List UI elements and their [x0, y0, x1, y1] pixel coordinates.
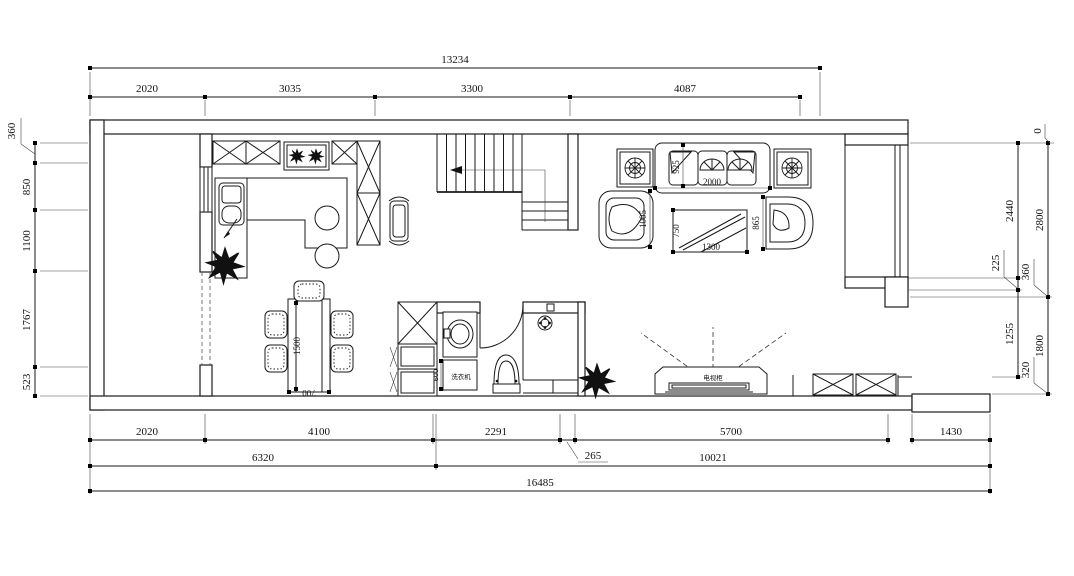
dim-bottom-leader: 265: [585, 450, 602, 462]
floor-drain-icon: [538, 316, 552, 330]
dim-right-outer-leader: 320: [1020, 361, 1032, 378]
stair-wall: [568, 134, 578, 230]
dim-sofa-depth: 925: [671, 160, 681, 174]
armchair-right: 865: [751, 195, 813, 251]
dim-bottom-seg: 5700: [720, 426, 743, 438]
living-room: 2000 925 1005 865: [599, 143, 813, 254]
dim-dining-width: 700: [302, 388, 316, 398]
dim-top-seg: 3035: [279, 83, 302, 95]
dim-top-overall: 13234: [441, 54, 469, 66]
dim-bottom-row2: 10021: [699, 452, 727, 464]
dim-right-outer: 2800: [1034, 209, 1046, 232]
bathroom-door: [480, 305, 523, 348]
tv-area: 电视柜: [641, 327, 912, 396]
dimensions-left: 360 850 1100 1767 523: [6, 118, 88, 398]
staircase: [437, 134, 578, 230]
hall-door-panel: [380, 141, 409, 245]
dim-sofa-width: 2000: [703, 177, 722, 187]
washing-machine: 洗衣机 600: [432, 359, 477, 391]
dining-chair: [331, 311, 353, 338]
dim-coffee-table-length: 1300: [702, 242, 721, 252]
coffee-table: 750 1300: [671, 208, 749, 254]
dim-top-seg: 2020: [136, 83, 159, 95]
dim-bottom-seg: 2291: [485, 426, 507, 438]
dim-bottom-row2: 6320: [252, 452, 275, 464]
storage-cabinet: [390, 302, 437, 396]
dim-left-seg: 1100: [21, 230, 33, 252]
washing-machine-label: 洗衣机: [451, 372, 471, 381]
side-table-left: [617, 149, 653, 187]
vanity: [443, 312, 477, 357]
dim-right-inner: 2440: [1004, 200, 1016, 223]
toilet: [493, 355, 520, 393]
dim-right-inner-leader: 225: [990, 254, 1002, 271]
dim-armchair-right: 865: [751, 216, 761, 230]
stool: [315, 206, 339, 230]
dining-chair: [265, 311, 287, 338]
interior-wall-left: [200, 134, 212, 396]
dim-armchair-left: 1005: [638, 210, 648, 229]
kitchen: [207, 141, 409, 283]
dim-bottom-seg: 1430: [940, 426, 963, 438]
low-cabinets: [793, 374, 912, 396]
dim-bottom-overall: 16485: [526, 477, 554, 489]
sliding-opening: [202, 272, 210, 365]
dim-top-seg: 3300: [461, 83, 484, 95]
dim-right-outer-leader: 360: [1020, 263, 1032, 280]
decor-rosette-icon: [782, 158, 802, 178]
dim-left-seg: 523: [21, 373, 33, 390]
dimensions-top: 13234 2020 3035 3300 4087: [88, 54, 822, 116]
tall-cabinet: [357, 141, 380, 245]
dim-right-outer: 1800: [1034, 335, 1046, 358]
dining-set: 1500 700: [265, 281, 353, 398]
floor-plan-canvas: 1500 700 洗衣机 600: [0, 0, 1074, 576]
bathroom: 洗衣机 600: [390, 302, 614, 397]
armchair-left: 1005: [599, 189, 653, 249]
sofa: 2000 925: [653, 143, 772, 193]
shower-room: [523, 304, 578, 393]
dim-bottom-seg: 2020: [136, 426, 159, 438]
window-left-wall: [200, 167, 212, 212]
dining-chair: [294, 281, 324, 301]
dim-left-seg: 1767: [21, 309, 33, 332]
dimensions-bottom: 2020 4100 2291 5700 1430 265 6320 10021 …: [88, 414, 992, 494]
dining-chair: [331, 345, 353, 372]
tv-cabinet-label: 电视柜: [703, 373, 723, 382]
dim-top-seg: 4087: [674, 83, 697, 95]
floor-plan-drawing: 1500 700 洗衣机 600: [0, 0, 1074, 576]
stool: [315, 244, 339, 268]
side-table-right: [774, 149, 811, 188]
cooktop: [284, 142, 329, 170]
shower-head: [547, 304, 554, 311]
dim-right-inner: 1255: [1004, 323, 1016, 346]
dim-right-zero: 0: [1032, 128, 1044, 134]
dim-left-seg: 850: [21, 178, 33, 195]
dim-left-leader: 360: [6, 122, 18, 139]
dim-coffee-table-depth: 750: [671, 224, 681, 238]
decor-rosette-icon: [625, 158, 645, 178]
dim-dining-length: 1500: [292, 337, 302, 356]
faucet: [444, 329, 450, 338]
dimensions-right: 0 2440 225 1255 2800 360 1800 320: [908, 124, 1054, 396]
dim-washer: 600: [432, 369, 440, 381]
dim-bottom-seg: 4100: [308, 426, 331, 438]
dining-chair: [265, 345, 287, 372]
